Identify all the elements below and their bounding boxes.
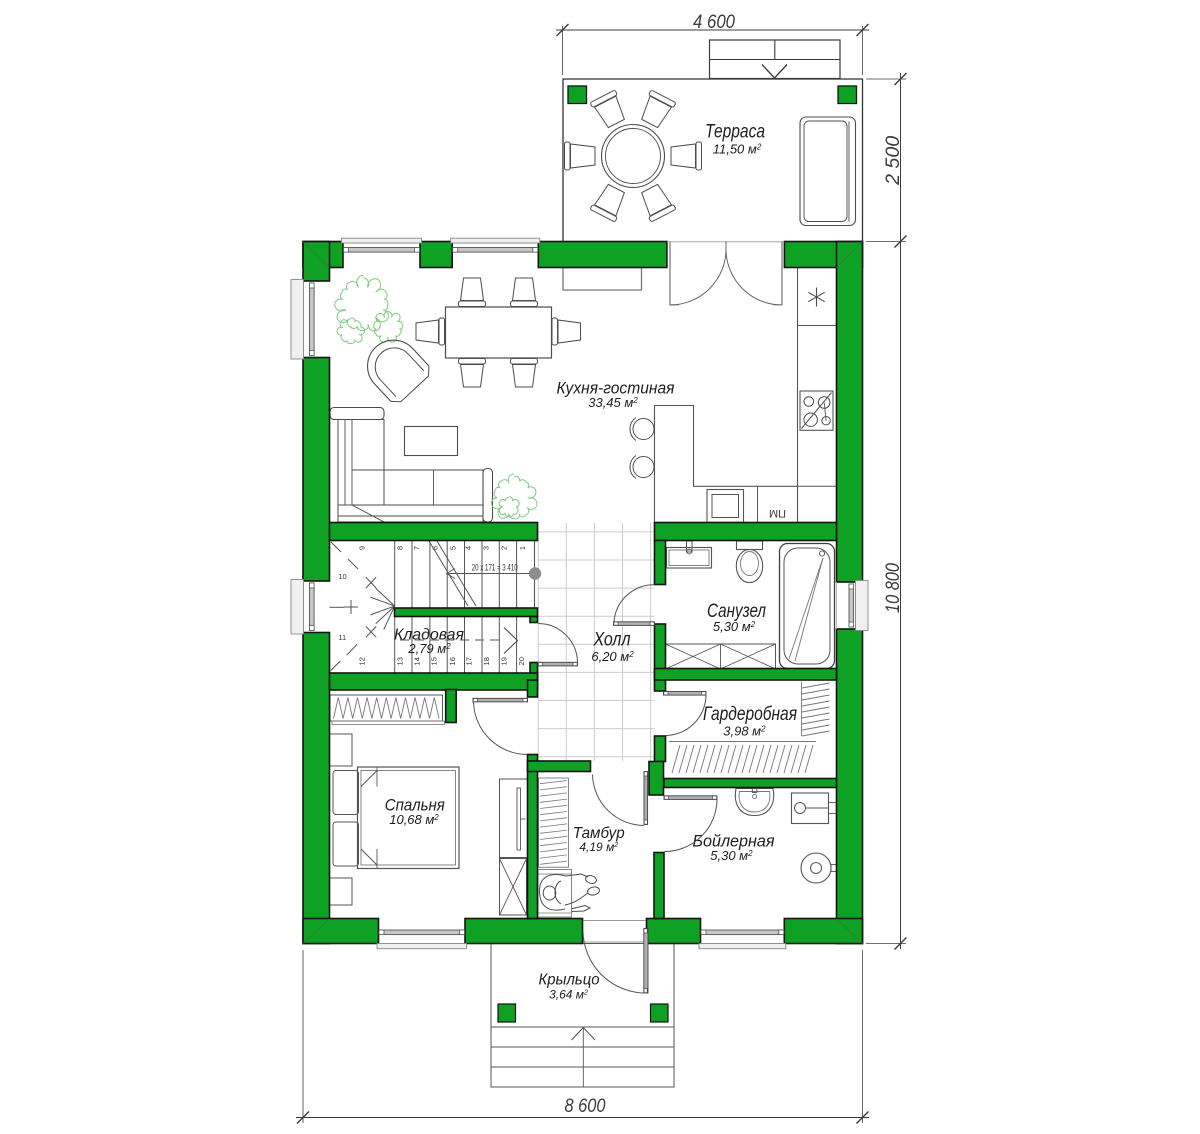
svg-text:12: 12 — [357, 657, 366, 665]
svg-text:Холл: Холл — [593, 630, 631, 651]
svg-text:10: 10 — [338, 572, 346, 581]
svg-text:8 600: 8 600 — [565, 1096, 606, 1117]
svg-text:8: 8 — [396, 546, 405, 550]
svg-text:11,50 м2: 11,50 м2 — [713, 142, 762, 157]
svg-text:15: 15 — [429, 657, 438, 665]
svg-text:5,30 м2: 5,30 м2 — [710, 848, 753, 863]
svg-text:10 800: 10 800 — [883, 563, 904, 613]
svg-text:4: 4 — [464, 546, 473, 550]
svg-text:2: 2 — [500, 546, 509, 550]
svg-text:19: 19 — [500, 657, 509, 665]
svg-text:13: 13 — [396, 657, 405, 665]
svg-text:18: 18 — [482, 657, 491, 665]
svg-text:14: 14 — [412, 657, 421, 665]
svg-text:3,98 м2: 3,98 м2 — [723, 724, 766, 739]
svg-text:6,20 м2: 6,20 м2 — [591, 649, 634, 664]
svg-text:Терраса: Терраса — [705, 122, 765, 143]
svg-text:5,30 м2: 5,30 м2 — [713, 619, 756, 634]
svg-text:5: 5 — [448, 546, 457, 550]
svg-text:3,64 м2: 3,64 м2 — [549, 988, 588, 1002]
svg-text:Гардеробная: Гардеробная — [703, 704, 797, 725]
svg-text:16: 16 — [448, 657, 457, 665]
svg-text:ПМ: ПМ — [769, 507, 786, 519]
svg-text:7: 7 — [412, 546, 421, 550]
svg-text:Крыльцо: Крыльцо — [539, 972, 600, 989]
svg-text:20: 20 — [517, 657, 526, 665]
svg-text:3: 3 — [482, 546, 491, 550]
svg-text:4,19 м2: 4,19 м2 — [579, 840, 618, 854]
svg-text:10,68 м2: 10,68 м2 — [389, 812, 439, 827]
svg-text:9: 9 — [357, 546, 366, 550]
svg-text:17: 17 — [465, 657, 474, 665]
svg-text:2 500: 2 500 — [883, 135, 904, 185]
svg-text:1: 1 — [518, 546, 527, 550]
svg-text:20 х 171 = 3 410: 20 х 171 = 3 410 — [472, 563, 518, 573]
svg-text:4 600: 4 600 — [693, 12, 735, 33]
svg-text:2,79 м2: 2,79 м2 — [407, 641, 451, 656]
svg-text:11: 11 — [338, 633, 346, 642]
svg-text:33,45 м2: 33,45 м2 — [588, 395, 638, 410]
